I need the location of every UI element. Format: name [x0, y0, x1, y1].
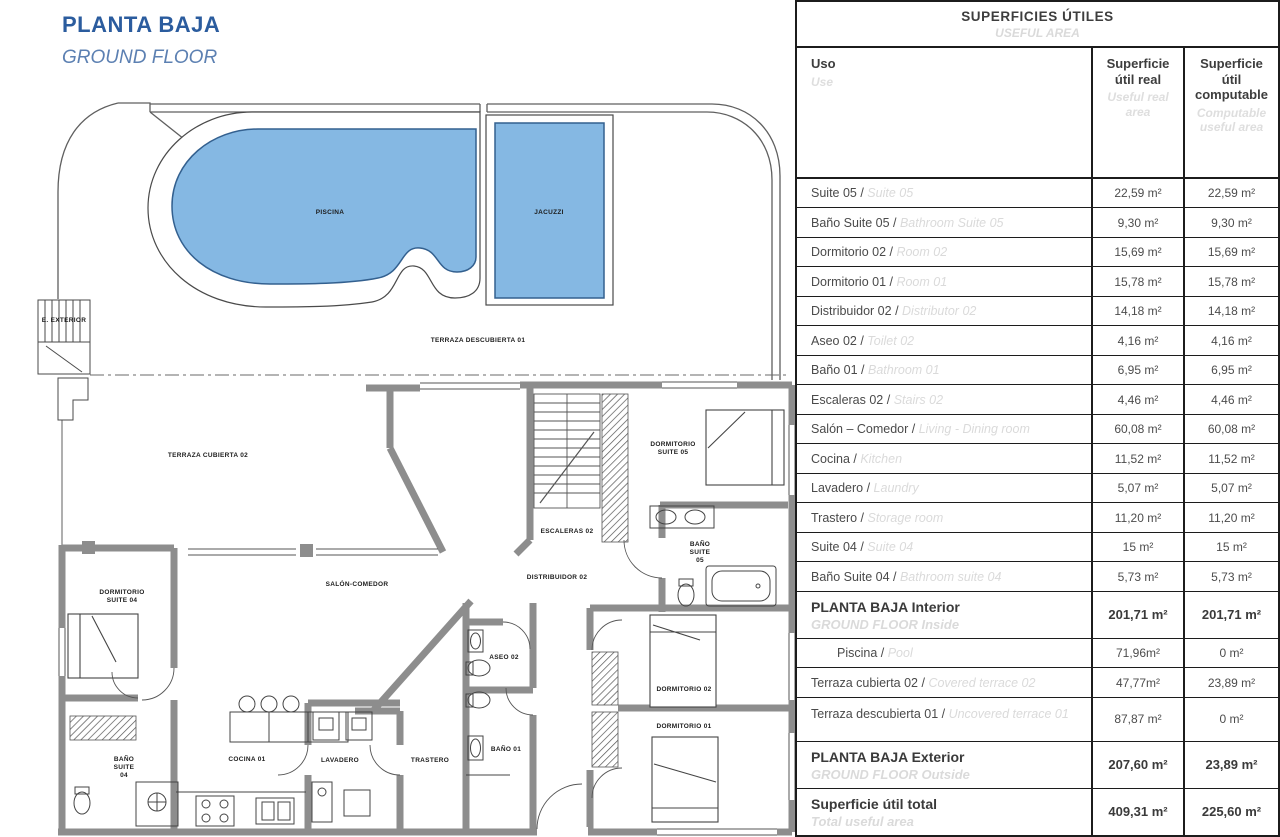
- row-uso-cell: Dormitorio 02 / Room 02: [797, 238, 1091, 266]
- row-slash: /: [877, 646, 887, 660]
- stool-icon: [239, 696, 255, 712]
- room-label: SALÓN-COMEDOR: [326, 581, 389, 589]
- row-uso-cell: PLANTA BAJA Interior / GROUND FLOOR Insi…: [797, 592, 1091, 638]
- row-uso-en: GROUND FLOOR Outside: [811, 767, 1091, 782]
- stove-icon: [196, 796, 234, 826]
- row-uso-en: Pool: [888, 646, 913, 660]
- row-real-value: 14,18 m²: [1091, 297, 1183, 325]
- room-label: ASEO 02: [489, 654, 519, 662]
- row-uso-es: Superficie útil total: [811, 796, 1091, 812]
- row-real-value: 4,16 m²: [1091, 326, 1183, 354]
- toilet-icon: [74, 787, 90, 814]
- row-uso-es: Lavadero: [811, 481, 863, 495]
- page: PLANTA BAJA GROUND FLOOR PISCINA JACUZZI…: [0, 0, 1280, 837]
- water-heater-icon: [312, 782, 332, 822]
- row-slash: /: [858, 363, 868, 377]
- row-slash: /: [890, 570, 900, 584]
- row-slash: /: [918, 676, 928, 690]
- row-uso-cell: Lavadero / Laundry: [797, 474, 1091, 502]
- laundry-fixtures: [312, 712, 372, 822]
- room-label: DORMITORIO 02: [656, 686, 711, 694]
- table-row: Piscina / Pool 71,96m² 0 m²: [797, 639, 1278, 668]
- row-real-value: 11,20 m²: [1091, 503, 1183, 531]
- row-comp-value: 23,89 m²: [1183, 668, 1278, 696]
- kitchen-sink-icon: [256, 798, 294, 824]
- row-real-value: 9,30 m²: [1091, 208, 1183, 236]
- row-real-value: 207,60 m²: [1091, 742, 1183, 788]
- row-uso-en: Bathroom 01: [868, 363, 940, 377]
- table-title-row: SUPERFICIES ÚTILES USEFUL AREA: [797, 2, 1278, 48]
- row-uso-en: Bathroom suite 04: [900, 570, 1001, 584]
- row-uso-es: Salón – Comedor: [811, 422, 908, 436]
- row-uso-es: Distribuidor 02: [811, 304, 892, 318]
- room-label-text: PISCINA: [316, 209, 344, 216]
- room-label-text: TERRAZA CUBIERTA 02: [168, 452, 248, 459]
- room-label-text: BAÑO SUITE 05: [690, 541, 711, 564]
- table-row: PLANTA BAJA Interior / GROUND FLOOR Insi…: [797, 592, 1278, 639]
- row-uso-cell: Terraza cubierta 02 / Covered terrace 02: [797, 668, 1091, 696]
- room-label-text: TERRAZA DESCUBIERTA 01: [431, 337, 525, 344]
- row-uso-cell: Distribuidor 02 / Distributor 02: [797, 297, 1091, 325]
- plan-title-block: PLANTA BAJA GROUND FLOOR: [62, 12, 220, 69]
- row-comp-value: 225,60 m²: [1183, 789, 1278, 835]
- room-label-text: BAÑO SUITE 04: [114, 756, 135, 779]
- row-uso-en: Laundry: [874, 481, 919, 495]
- row-uso-es: Terraza descubierta 01: [811, 707, 938, 721]
- table-row: Baño Suite 04 / Bathroom suite 04 5,73 m…: [797, 562, 1278, 591]
- bed-icon: [652, 737, 718, 822]
- row-uso-es: Suite 04: [811, 540, 857, 554]
- row-comp-value: 15 m²: [1183, 533, 1278, 561]
- row-uso-cell: Aseo 02 / Toilet 02: [797, 326, 1091, 354]
- row-comp-value: 22,59 m²: [1183, 179, 1278, 207]
- room-label-text: E. EXTERIOR: [42, 317, 86, 324]
- row-real-value: 87,87 m²: [1091, 698, 1183, 741]
- room-label: BAÑO SUITE 04: [114, 756, 135, 780]
- room-label: DORMITORIO 01: [656, 723, 711, 731]
- row-uso-en: Total useful area: [811, 814, 1091, 829]
- row-uso-en: GROUND FLOOR Inside: [811, 617, 1091, 632]
- row-real-value: 5,73 m²: [1091, 562, 1183, 590]
- row-uso-es: Baño Suite 05: [811, 216, 890, 230]
- row-uso-es: Baño 01: [811, 363, 858, 377]
- row-slash: /: [883, 393, 893, 407]
- row-comp-value: 201,71 m²: [1183, 592, 1278, 638]
- stool-icon: [261, 696, 277, 712]
- page-subtitle: GROUND FLOOR: [62, 47, 220, 69]
- bathtub-icon: [706, 566, 776, 606]
- row-uso-en: Room 01: [896, 275, 947, 289]
- room-label: ESCALERAS 02: [541, 528, 594, 536]
- table-row: Suite 04 / Suite 04 15 m² 15 m²: [797, 533, 1278, 562]
- room-label: BAÑO 01: [491, 746, 521, 754]
- room-label: E. EXTERIOR: [42, 317, 86, 325]
- room-label-text: SALÓN-COMEDOR: [326, 581, 389, 588]
- row-comp-value: 15,78 m²: [1183, 267, 1278, 295]
- col-uso-es: Uso: [811, 56, 1091, 72]
- table-row: Dormitorio 01 / Room 01 15,78 m² 15,78 m…: [797, 267, 1278, 296]
- sink-icon: [468, 736, 483, 760]
- row-slash: /: [938, 707, 948, 721]
- room-label-text: JACUZZI: [534, 209, 564, 216]
- room-label-text: BAÑO 01: [491, 746, 521, 753]
- toilet-icon: [678, 579, 694, 606]
- table-row: Escaleras 02 / Stairs 02 4,46 m² 4,46 m²: [797, 385, 1278, 414]
- row-uso-cell: Escaleras 02 / Stairs 02: [797, 385, 1091, 413]
- row-slash: /: [857, 186, 867, 200]
- row-uso-cell: Cocina / Kitchen: [797, 444, 1091, 472]
- row-comp-value: 5,73 m²: [1183, 562, 1278, 590]
- col-real-en: Useful real area: [1099, 90, 1177, 119]
- table-row: Trastero / Storage room 11,20 m² 11,20 m…: [797, 503, 1278, 532]
- row-slash: /: [857, 511, 867, 525]
- toilet-icon: [466, 660, 490, 676]
- row-uso-cell: Suite 04 / Suite 04: [797, 533, 1091, 561]
- row-uso-en: Kitchen: [860, 452, 902, 466]
- table-row: Lavadero / Laundry 5,07 m² 5,07 m²: [797, 474, 1278, 503]
- row-real-value: 409,31 m²: [1091, 789, 1183, 835]
- table-row: Suite 05 / Suite 05 22,59 m² 22,59 m²: [797, 179, 1278, 208]
- col-comp-es: Superficie útil computable: [1191, 56, 1272, 103]
- row-real-value: 5,07 m²: [1091, 474, 1183, 502]
- room-label-text: DORMITORIO 01: [656, 723, 711, 730]
- row-uso-cell: Piscina / Pool: [797, 639, 1091, 667]
- table-row: Baño 01 / Bathroom 01 6,95 m² 6,95 m²: [797, 356, 1278, 385]
- row-real-value: 15 m²: [1091, 533, 1183, 561]
- col-header-real: Superficie útil real Useful real area: [1091, 48, 1183, 177]
- row-uso-es: Piscina: [837, 646, 877, 660]
- row-uso-en: Living - Dining room: [919, 422, 1030, 436]
- row-uso-en: Distributor 02: [902, 304, 976, 318]
- room-label-text: DISTRIBUIDOR 02: [527, 574, 587, 581]
- row-slash: /: [857, 540, 867, 554]
- row-comp-value: 0 m²: [1183, 639, 1278, 667]
- room-label: DORMITORIO SUITE 04: [99, 589, 144, 605]
- room-label: DORMITORIO SUITE 05: [650, 441, 695, 457]
- row-uso-cell: Baño 01 / Bathroom 01: [797, 356, 1091, 384]
- row-real-value: 15,69 m²: [1091, 238, 1183, 266]
- table-row: Cocina / Kitchen 11,52 m² 11,52 m²: [797, 444, 1278, 473]
- row-uso-cell: Baño Suite 04 / Bathroom suite 04: [797, 562, 1091, 590]
- table-row: Superficie útil total / Total useful are…: [797, 789, 1278, 835]
- room-label-text: ASEO 02: [489, 654, 519, 661]
- col-uso-en: Use: [811, 75, 1091, 89]
- table-body: Suite 05 / Suite 05 22,59 m² 22,59 m² Ba…: [797, 179, 1278, 835]
- room-label: TERRAZA DESCUBIERTA 01: [431, 337, 525, 345]
- row-uso-es: Aseo 02: [811, 334, 857, 348]
- row-uso-es: Terraza cubierta 02: [811, 676, 918, 690]
- row-uso-cell: Salón – Comedor / Living - Dining room: [797, 415, 1091, 443]
- row-uso-cell: Baño Suite 05 / Bathroom Suite 05: [797, 208, 1091, 236]
- row-slash: /: [857, 334, 867, 348]
- row-uso-en: Suite 04: [867, 540, 913, 554]
- floor-plan: PLANTA BAJA GROUND FLOOR PISCINA JACUZZI…: [0, 0, 795, 837]
- row-uso-en: Stairs 02: [894, 393, 943, 407]
- room-label-text: TRASTERO: [411, 757, 449, 764]
- row-uso-en: Bathroom Suite 05: [900, 216, 1004, 230]
- room-label-text: LAVADERO: [321, 757, 359, 764]
- row-comp-value: 4,16 m²: [1183, 326, 1278, 354]
- row-uso-es: Suite 05: [811, 186, 857, 200]
- row-real-value: 71,96m²: [1091, 639, 1183, 667]
- row-real-value: 11,52 m²: [1091, 444, 1183, 472]
- row-uso-en: Room 02: [896, 245, 947, 259]
- room-label: BAÑO SUITE 05: [690, 541, 711, 565]
- row-uso-cell: Dormitorio 01 / Room 01: [797, 267, 1091, 295]
- stool-icon: [283, 696, 299, 712]
- row-comp-value: 23,89 m²: [1183, 742, 1278, 788]
- row-uso-es: PLANTA BAJA Interior: [811, 599, 1091, 615]
- row-real-value: 60,08 m²: [1091, 415, 1183, 443]
- bed-icon: [706, 410, 784, 485]
- col-header-uso: Uso Use: [797, 48, 1091, 177]
- room-label: LAVADERO: [321, 757, 359, 765]
- row-comp-value: 4,46 m²: [1183, 385, 1278, 413]
- col-real-es: Superficie útil real: [1099, 56, 1177, 87]
- room-label: PISCINA: [316, 209, 344, 217]
- row-comp-value: 15,69 m²: [1183, 238, 1278, 266]
- row-uso-es: Baño Suite 04: [811, 570, 890, 584]
- row-comp-value: 6,95 m²: [1183, 356, 1278, 384]
- row-real-value: 15,78 m²: [1091, 267, 1183, 295]
- row-uso-es: Escaleras 02: [811, 393, 883, 407]
- row-uso-cell: Trastero / Storage room: [797, 503, 1091, 531]
- room-label: TERRAZA CUBIERTA 02: [168, 452, 248, 460]
- row-uso-es: Dormitorio 02: [811, 245, 886, 259]
- row-slash: /: [863, 481, 873, 495]
- room-label-text: DORMITORIO 02: [656, 686, 711, 693]
- table-title-en: USEFUL AREA: [797, 26, 1278, 40]
- table-row: Salón – Comedor / Living - Dining room 6…: [797, 415, 1278, 444]
- room-label: COCINA 01: [228, 756, 265, 764]
- row-comp-value: 9,30 m²: [1183, 208, 1278, 236]
- toilet-icon: [466, 692, 490, 708]
- room-label-text: DORMITORIO SUITE 04: [99, 589, 144, 604]
- row-real-value: 22,59 m²: [1091, 179, 1183, 207]
- room-label: DISTRIBUIDOR 02: [527, 574, 587, 582]
- table-row: Terraza descubierta 01 / Uncovered terra…: [797, 698, 1278, 742]
- row-slash: /: [890, 216, 900, 230]
- row-comp-value: 11,52 m²: [1183, 444, 1278, 472]
- table-row: Aseo 02 / Toilet 02 4,16 m² 4,16 m²: [797, 326, 1278, 355]
- room-label-text: DORMITORIO SUITE 05: [650, 441, 695, 456]
- table-row: Terraza cubierta 02 / Covered terrace 02…: [797, 668, 1278, 697]
- floor-plan-drawing: [0, 0, 795, 837]
- row-uso-en: Storage room: [868, 511, 944, 525]
- table-row: Baño Suite 05 / Bathroom Suite 05 9,30 m…: [797, 208, 1278, 237]
- room-label: TRASTERO: [411, 757, 449, 765]
- room-label: JACUZZI: [534, 209, 564, 217]
- row-uso-es: Dormitorio 01: [811, 275, 886, 289]
- row-uso-cell: Suite 05 / Suite 05: [797, 179, 1091, 207]
- row-uso-en: Covered terrace 02: [928, 676, 1035, 690]
- table-row: PLANTA BAJA Exterior / GROUND FLOOR Outs…: [797, 742, 1278, 789]
- row-uso-es: Cocina: [811, 452, 850, 466]
- table-title: SUPERFICIES ÚTILES: [797, 9, 1278, 24]
- row-uso-en: Uncovered terrace 01: [949, 707, 1069, 721]
- row-comp-value: 0 m²: [1183, 698, 1278, 741]
- row-real-value: 201,71 m²: [1091, 592, 1183, 638]
- row-uso-en: Toilet 02: [867, 334, 914, 348]
- row-real-value: 4,46 m²: [1091, 385, 1183, 413]
- row-uso-es: PLANTA BAJA Exterior: [811, 749, 1091, 765]
- washer-icon: [313, 712, 339, 740]
- row-uso-cell: PLANTA BAJA Exterior / GROUND FLOOR Outs…: [797, 742, 1091, 788]
- row-comp-value: 60,08 m²: [1183, 415, 1278, 443]
- row-real-value: 6,95 m²: [1091, 356, 1183, 384]
- sink-icon: [468, 630, 483, 652]
- washer-icon: [346, 712, 372, 740]
- row-slash: /: [892, 304, 902, 318]
- row-comp-value: 14,18 m²: [1183, 297, 1278, 325]
- room-label-text: ESCALERAS 02: [541, 528, 594, 535]
- interior-stairs: [534, 394, 600, 508]
- col-header-comp: Superficie útil computable Computable us…: [1183, 48, 1278, 177]
- bed-icon: [68, 614, 138, 678]
- row-uso-en: Suite 05: [867, 186, 913, 200]
- row-slash: /: [886, 275, 896, 289]
- row-uso-es: Trastero: [811, 511, 857, 525]
- areas-table: SUPERFICIES ÚTILES USEFUL AREA Uso Use S…: [795, 0, 1280, 837]
- row-slash: /: [908, 422, 918, 436]
- row-slash: /: [850, 452, 860, 466]
- row-real-value: 47,77m²: [1091, 668, 1183, 696]
- row-comp-value: 5,07 m²: [1183, 474, 1278, 502]
- page-title: PLANTA BAJA: [62, 12, 220, 38]
- row-uso-cell: Terraza descubierta 01 / Uncovered terra…: [797, 698, 1091, 741]
- table-header-row: Uso Use Superficie útil real Useful real…: [797, 48, 1278, 179]
- room-label-text: COCINA 01: [228, 756, 265, 763]
- row-comp-value: 11,20 m²: [1183, 503, 1278, 531]
- row-slash: /: [886, 245, 896, 259]
- table-row: Distribuidor 02 / Distributor 02 14,18 m…: [797, 297, 1278, 326]
- table-row: Dormitorio 02 / Room 02 15,69 m² 15,69 m…: [797, 238, 1278, 267]
- row-uso-cell: Superficie útil total / Total useful are…: [797, 789, 1091, 835]
- col-comp-en: Computable useful area: [1191, 106, 1272, 135]
